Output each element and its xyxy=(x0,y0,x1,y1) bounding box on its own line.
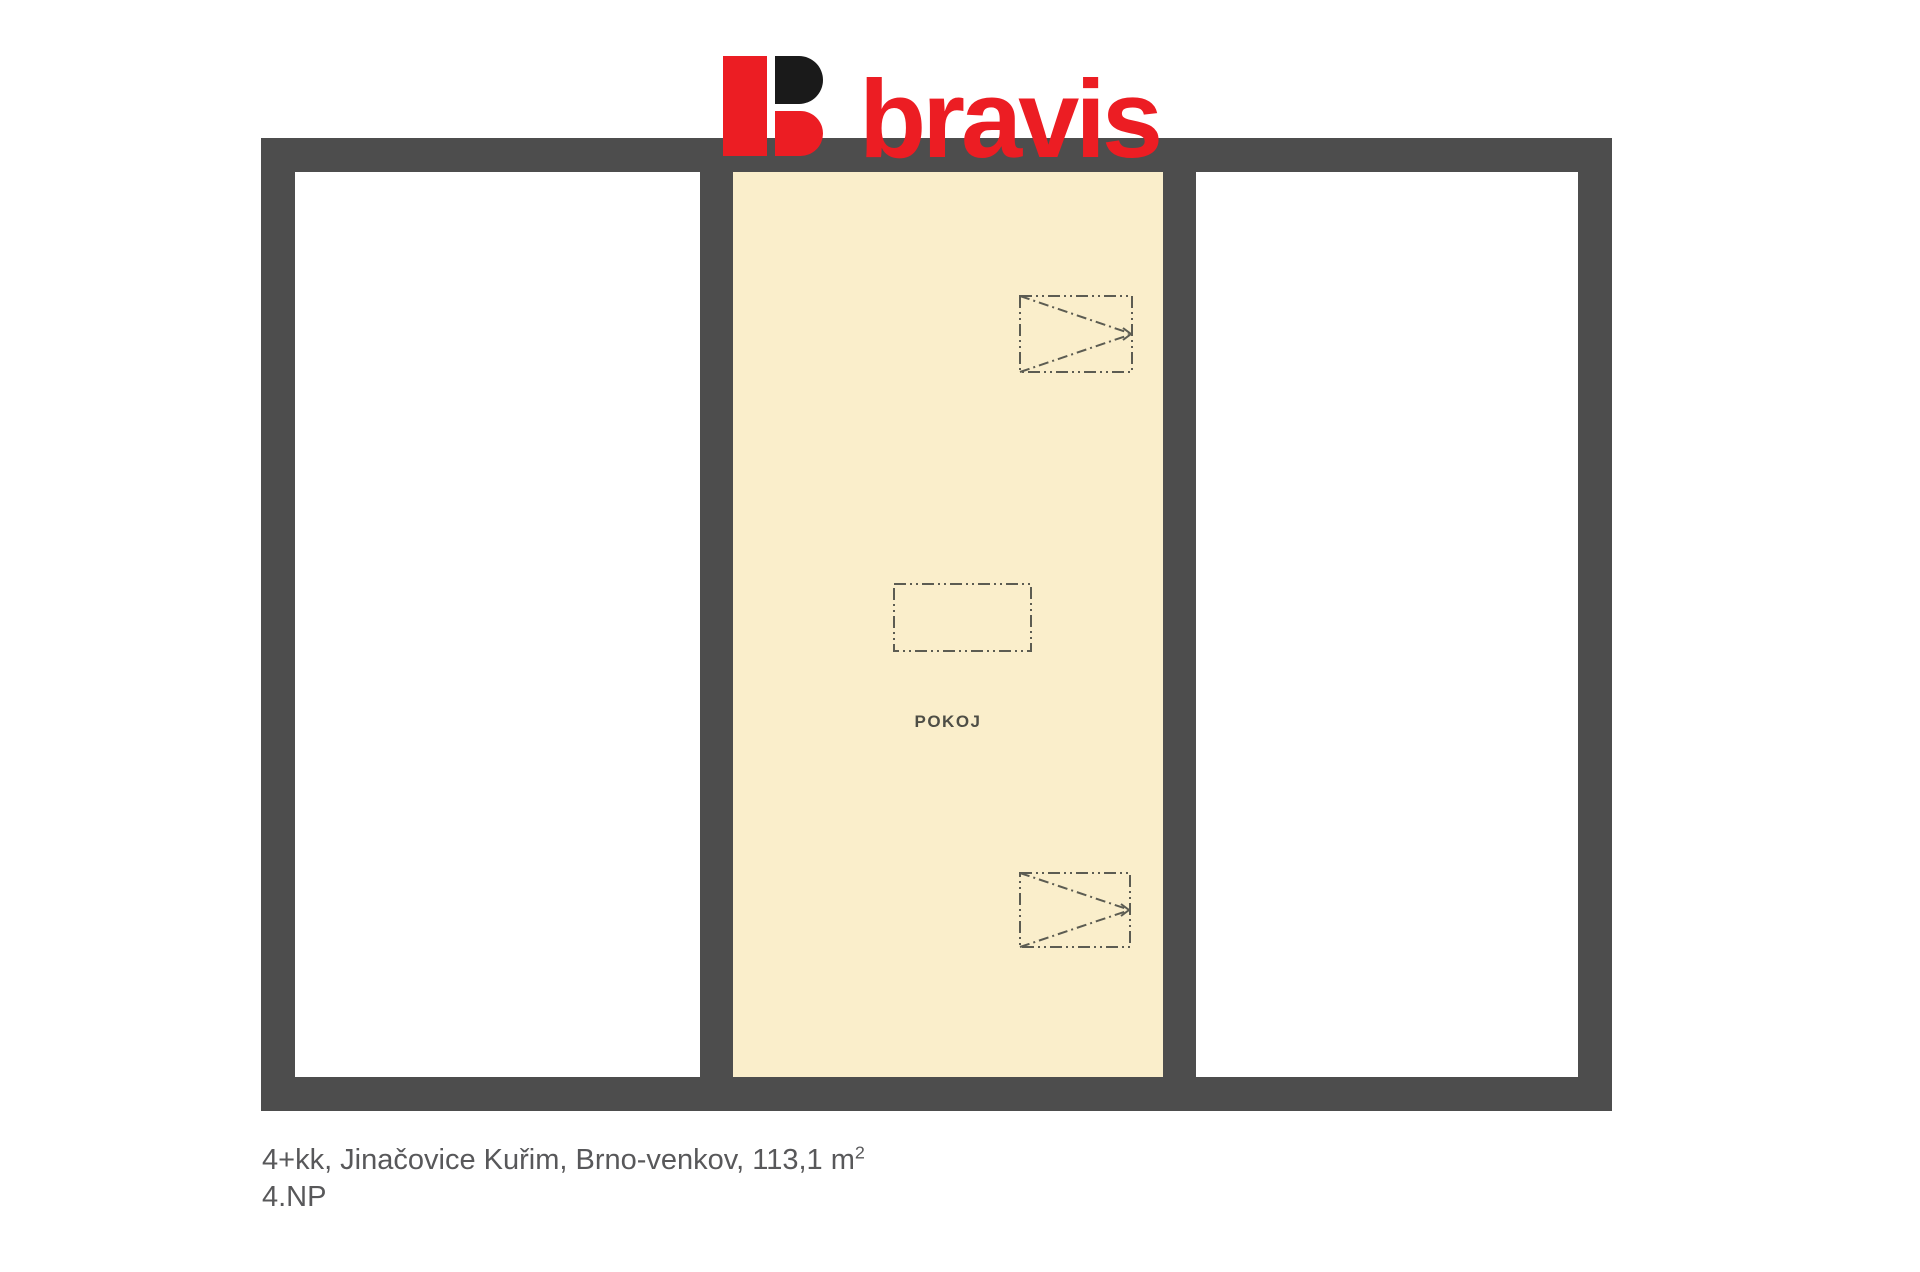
room-right xyxy=(1196,172,1578,1077)
arrow-icon xyxy=(1121,904,1129,916)
furniture-rect-symbol xyxy=(893,583,1032,652)
floorplan-page: bravis POKOJ 4+kk, xyxy=(0,0,1920,1272)
caption-line1-text: 4+kk, Jinačovice Kuřim, Brno-venkov, 113… xyxy=(262,1144,855,1176)
logo-mark-stem xyxy=(723,56,767,156)
bravis-logo-text: bravis xyxy=(859,65,1159,175)
room-center: POKOJ xyxy=(733,172,1163,1077)
window-swing-symbol-bottom xyxy=(1019,872,1131,948)
floor-plan: POKOJ xyxy=(261,138,1612,1111)
logo-mark-bottom-bowl xyxy=(775,111,823,156)
caption-line-2: 4.NP xyxy=(262,1179,865,1216)
caption-superscript: 2 xyxy=(855,1142,865,1162)
window-swing-symbol-top xyxy=(1019,295,1133,373)
room-label: POKOJ xyxy=(733,712,1163,732)
caption-line-1: 4+kk, Jinačovice Kuřim, Brno-venkov, 113… xyxy=(262,1142,865,1179)
logo-mark-top-bowl xyxy=(775,56,823,104)
bravis-logo-b-icon xyxy=(723,56,823,156)
bravis-logo: bravis xyxy=(723,56,1203,156)
interior-wall-right xyxy=(1163,172,1196,1077)
room-left xyxy=(295,172,700,1077)
arrow-icon xyxy=(1123,328,1131,340)
caption: 4+kk, Jinačovice Kuřim, Brno-venkov, 113… xyxy=(262,1142,865,1216)
interior-wall-left xyxy=(700,172,733,1077)
